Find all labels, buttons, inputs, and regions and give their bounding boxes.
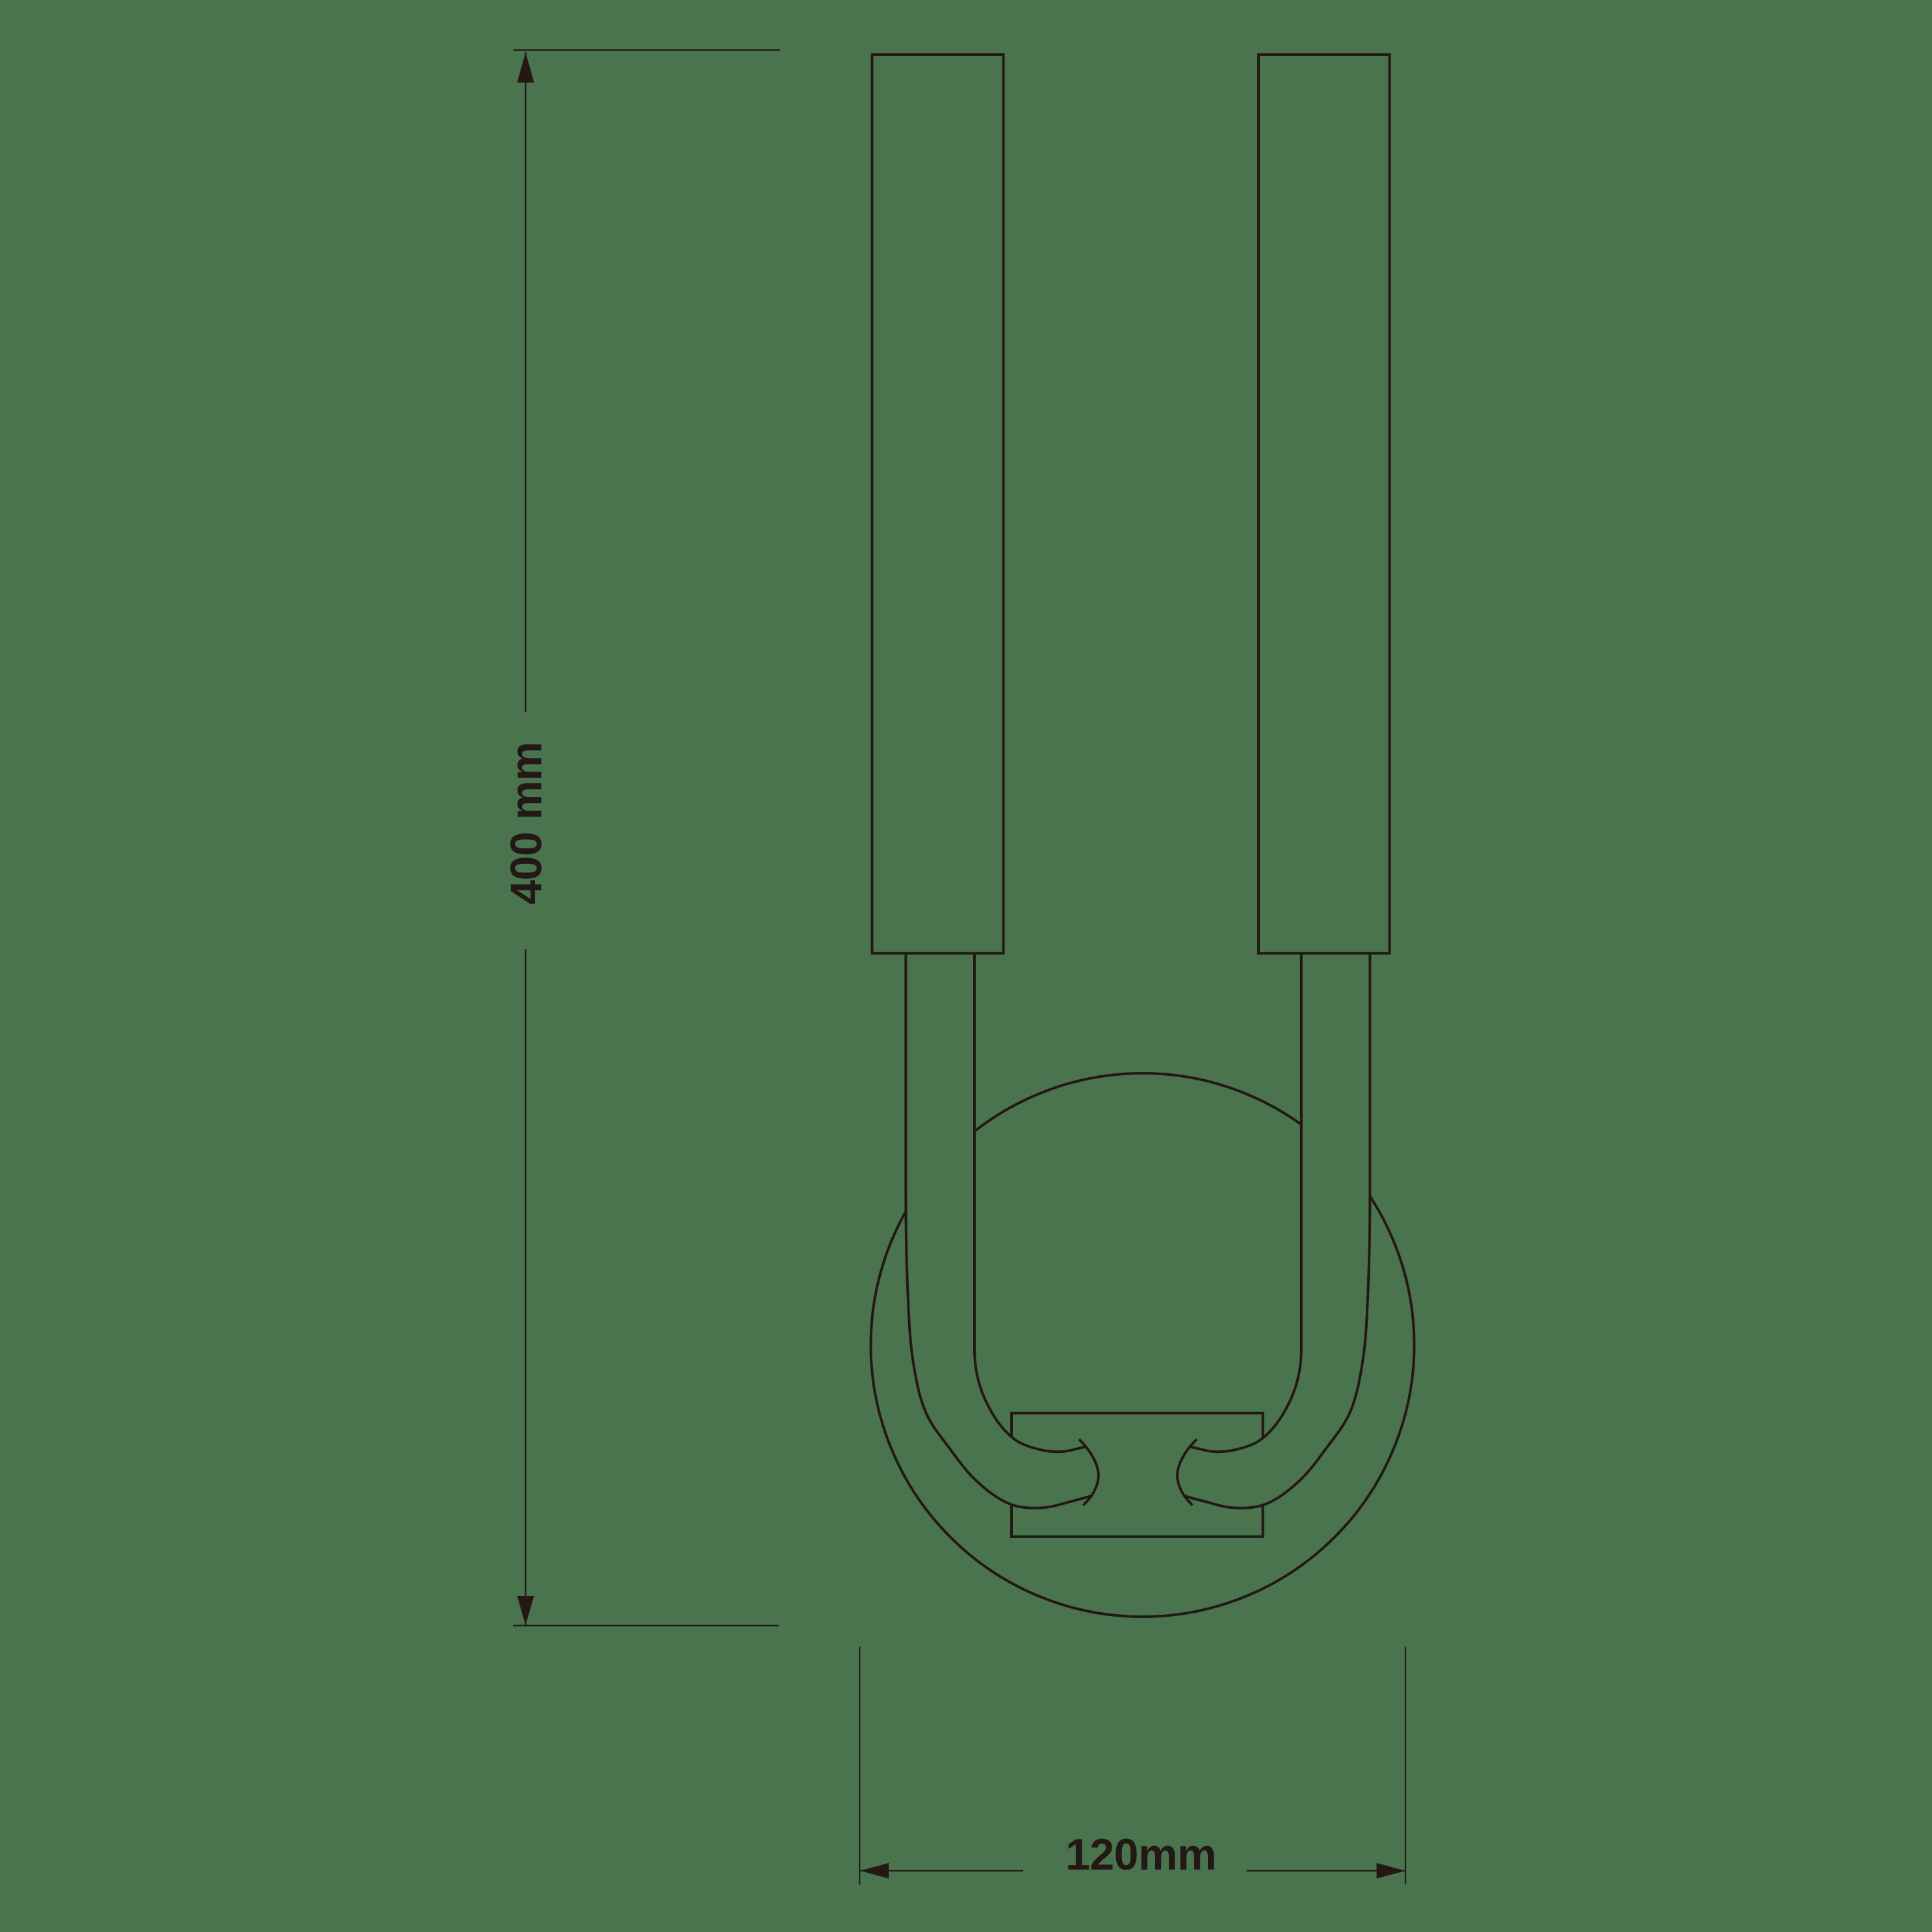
svg-text:400 mm: 400 mm (502, 742, 551, 904)
svg-text:120mm: 120mm (1065, 1830, 1216, 1879)
